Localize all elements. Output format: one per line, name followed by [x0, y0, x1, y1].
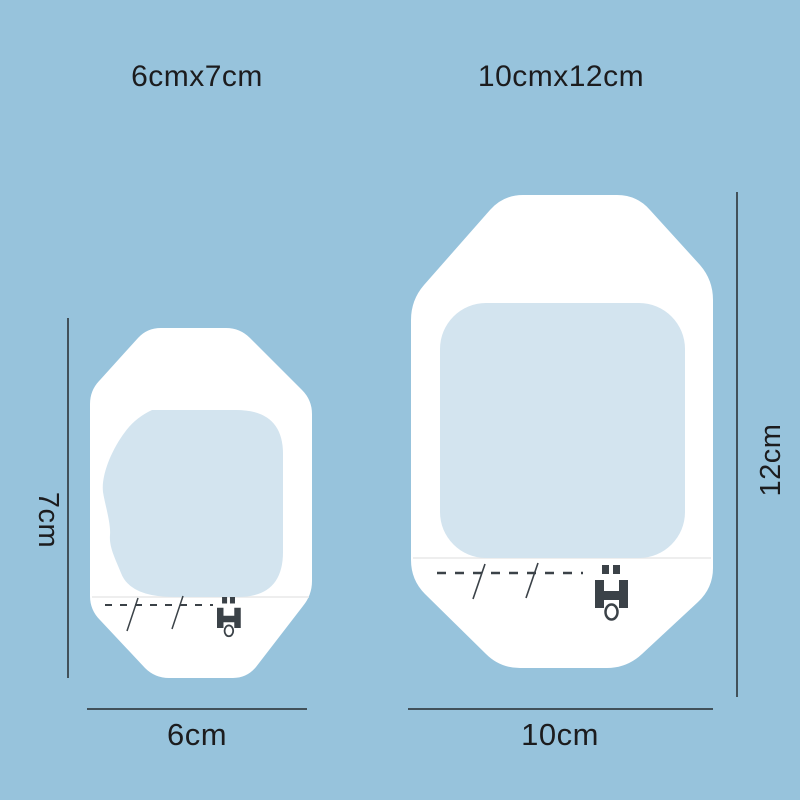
small-height-label: 7cm: [32, 480, 64, 560]
large-height-dimension-line: [736, 192, 738, 697]
small-width-dimension-line: [87, 708, 307, 710]
small-width-label: 6cm: [137, 719, 257, 751]
small-dressing-illustration: [88, 326, 318, 682]
large-dressing-film-pane: [440, 303, 685, 558]
large-width-label: 10cm: [490, 719, 630, 751]
product-size-diagram: 6cmx7cm 10cmx12cm: [0, 0, 800, 800]
large-height-label: 12cm: [755, 415, 787, 505]
large-width-dimension-line: [408, 708, 713, 710]
large-dressing-illustration: [405, 190, 725, 680]
small-size-title: 6cmx7cm: [97, 61, 297, 93]
large-size-title: 10cmx12cm: [441, 61, 681, 93]
small-dressing-film-pane: [103, 410, 283, 597]
small-height-dimension-line: [67, 318, 69, 678]
